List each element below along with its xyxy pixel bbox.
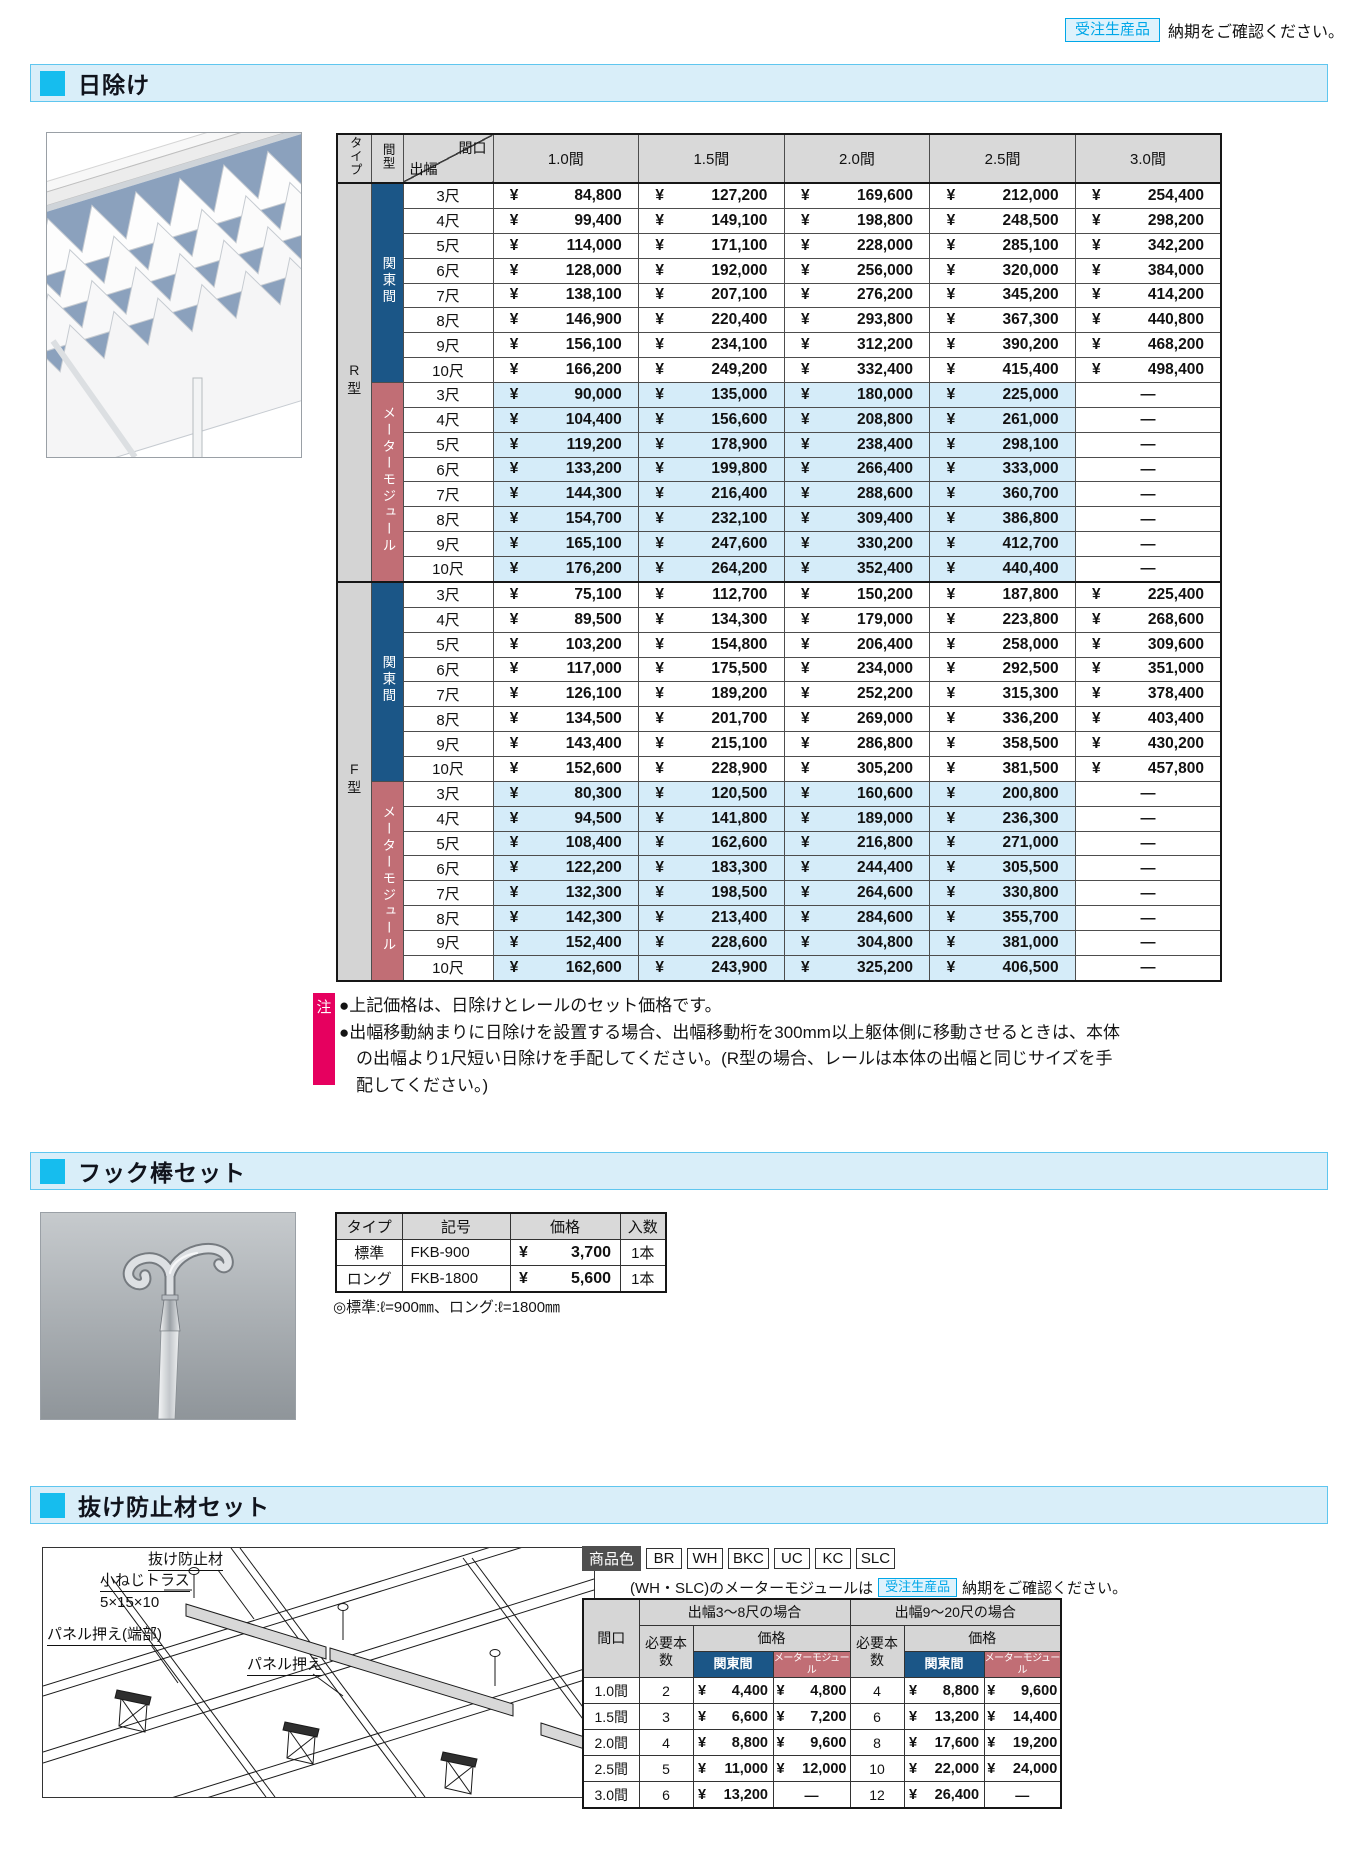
price-cell: ¥284,600: [784, 906, 930, 931]
amount: 13,200: [724, 1787, 768, 1803]
price-cell: ¥309,600: [1075, 632, 1221, 657]
price-cell: ¥192,000: [639, 258, 785, 283]
price-value: ¥234,100: [655, 336, 767, 354]
price-cell: ¥108,400: [493, 831, 639, 856]
yen-sign: ¥: [947, 760, 956, 778]
price-cell: ¥189,000: [784, 806, 930, 831]
amount: 457,800: [1148, 760, 1204, 778]
amount: 367,300: [1003, 311, 1059, 329]
price-value: ¥412,700: [947, 535, 1059, 553]
price-cell: ¥138,100: [493, 283, 639, 308]
yen-sign: ¥: [777, 1709, 785, 1725]
amount: 4,400: [732, 1683, 768, 1699]
depth-cell: 6尺: [403, 657, 493, 682]
yen-sign: ¥: [655, 535, 664, 553]
price-value: ¥166,200: [510, 361, 622, 379]
yen-sign: ¥: [510, 212, 519, 230]
price-cell: ¥90,000: [493, 382, 639, 407]
price-cell: ¥178,900: [639, 432, 785, 457]
price-value: ¥104,400: [510, 411, 622, 429]
sunshade-photo-illustration: [47, 133, 301, 457]
col-header-qty: 必要本数: [639, 1626, 693, 1678]
amount: 228,600: [711, 934, 767, 952]
price-cell: ¥14,400: [984, 1704, 1061, 1730]
price-value: ¥192,000: [655, 262, 767, 280]
price-value: ¥271,000: [947, 834, 1059, 852]
price-value: ¥156,100: [510, 336, 622, 354]
amount: 198,500: [711, 884, 767, 902]
price-cell: ¥103,200: [493, 632, 639, 657]
amount: 440,400: [1003, 560, 1059, 578]
price-cell: ¥84,800: [493, 183, 639, 208]
price-value: ¥208,800: [801, 411, 913, 429]
depth-cell: 6尺: [403, 457, 493, 482]
price-value: ¥144,300: [510, 485, 622, 503]
yen-sign: ¥: [510, 685, 519, 703]
hiyoke-note-block: 注 ●上記価格は、日除けとレールのセット価格です。 ●出幅移動納まりに日除けを設…: [313, 993, 1123, 1099]
amount: 180,000: [857, 386, 913, 404]
yen-sign: ¥: [655, 460, 664, 478]
yen-sign: ¥: [655, 436, 664, 454]
price-value: ¥84,800: [510, 187, 622, 205]
amount: 386,800: [1003, 510, 1059, 528]
price-cell: ¥11,000: [693, 1756, 773, 1782]
amount: 498,400: [1148, 361, 1204, 379]
price-cell: ¥5,600: [510, 1266, 620, 1293]
hook-table-head: タイプ記号価格入数: [336, 1213, 666, 1240]
price-cell: ¥266,400: [784, 457, 930, 482]
nuke-note-prefix: (WH・SLC)のメーターモジュールは: [630, 1577, 873, 1598]
price-value: ¥11,000: [698, 1761, 768, 1777]
yen-sign: ¥: [655, 909, 664, 927]
amount: 134,300: [711, 611, 767, 629]
amount: 468,200: [1148, 336, 1204, 354]
yen-sign: ¥: [801, 859, 810, 877]
price-value: ¥333,000: [947, 460, 1059, 478]
amount: 403,400: [1148, 710, 1204, 728]
amount: 26,400: [935, 1787, 979, 1803]
price-value: ¥134,500: [510, 710, 622, 728]
amount: 360,700: [1003, 485, 1059, 503]
price-cell: ¥220,400: [639, 308, 785, 333]
yen-sign: ¥: [510, 386, 519, 404]
yen-sign: ¥: [698, 1787, 706, 1803]
amount: 11,000: [724, 1761, 768, 1777]
price-value: ¥122,200: [510, 859, 622, 877]
yen-sign: ¥: [655, 785, 664, 803]
col-header: タイプ: [336, 1213, 402, 1240]
yen-sign: ¥: [801, 336, 810, 354]
nuke-table-body: 1.0間2¥4,400¥4,8004¥8,800¥9,6001.5間3¥6,60…: [583, 1678, 1061, 1809]
yen-sign: ¥: [801, 586, 810, 604]
price-value: ¥415,400: [947, 361, 1059, 379]
price-cell: ¥305,500: [930, 856, 1076, 881]
price-value: ¥215,100: [655, 735, 767, 753]
amount: 309,400: [857, 510, 913, 528]
table-row: 7尺¥138,100¥207,100¥276,200¥345,200¥414,2…: [337, 283, 1221, 308]
section-header-hiyoke: 日除け: [30, 64, 1328, 102]
price-cell: ¥201,700: [639, 707, 785, 732]
yen-sign: ¥: [801, 311, 810, 329]
amount: 309,600: [1148, 636, 1204, 654]
price-cell: ¥315,300: [930, 682, 1076, 707]
code-cell: FKB-900: [402, 1240, 510, 1266]
price-value: ¥141,800: [655, 810, 767, 828]
yen-sign: ¥: [947, 411, 956, 429]
amount: 345,200: [1003, 286, 1059, 304]
price-cell: ¥360,700: [930, 482, 1076, 507]
yen-sign: ¥: [947, 884, 956, 902]
price-cell: ¥320,000: [930, 258, 1076, 283]
price-cell: ¥216,800: [784, 831, 930, 856]
type-cell: 標準: [336, 1240, 402, 1266]
col-header-group1: 出幅3〜8尺の場合: [639, 1599, 850, 1626]
yen-sign: ¥: [1092, 361, 1101, 379]
price-cell: ¥89,500: [493, 607, 639, 632]
price-cell: —: [1075, 507, 1221, 532]
price-cell: ¥199,800: [639, 457, 785, 482]
depth-cell: 4尺: [403, 806, 493, 831]
yen-sign: ¥: [655, 510, 664, 528]
depth-cell: 9尺: [403, 532, 493, 557]
price-cell: ¥381,000: [930, 930, 1076, 955]
yen-sign: ¥: [698, 1735, 706, 1751]
price-value: ¥198,500: [655, 884, 767, 902]
price-value: ¥149,100: [655, 212, 767, 230]
yen-sign: ¥: [801, 535, 810, 553]
price-value: ¥138,100: [510, 286, 622, 304]
yen-sign: ¥: [655, 411, 664, 429]
col-header-width: 1.5間: [639, 134, 785, 183]
price-cell: —: [1075, 781, 1221, 806]
price-value: ¥119,200: [510, 436, 622, 454]
price-cell: ¥135,000: [639, 382, 785, 407]
yen-sign: ¥: [801, 460, 810, 478]
amount: 254,400: [1148, 187, 1204, 205]
price-cell: ¥175,500: [639, 657, 785, 682]
depth-cell: 6尺: [403, 258, 493, 283]
price-value: ¥330,800: [947, 884, 1059, 902]
price-value: ¥94,500: [510, 810, 622, 828]
price-value: ¥108,400: [510, 834, 622, 852]
price-value: ¥284,600: [801, 909, 913, 927]
yen-sign: ¥: [801, 237, 810, 255]
price-value: ¥180,000: [801, 386, 913, 404]
amount: 166,200: [566, 361, 622, 379]
price-value: ¥384,000: [1092, 262, 1204, 280]
price-cell: ¥141,800: [639, 806, 785, 831]
price-cell: ¥243,900: [639, 955, 785, 981]
amount: 162,600: [711, 834, 767, 852]
price-cell: ¥342,200: [1075, 233, 1221, 258]
price-value: ¥213,400: [655, 909, 767, 927]
price-cell: —: [1075, 856, 1221, 881]
price-value: ¥4,400: [698, 1683, 768, 1699]
price-value: ¥256,000: [801, 262, 913, 280]
note-line: ●上記価格は、日除けとレールのセット価格です。: [339, 993, 1123, 1020]
yen-sign: ¥: [510, 286, 519, 304]
price-value: ¥13,200: [698, 1787, 768, 1803]
price-cell: ¥144,300: [493, 482, 639, 507]
hiyoke-product-photo: [46, 132, 302, 458]
amount: 440,800: [1148, 311, 1204, 329]
table-row: 7尺¥126,100¥189,200¥252,200¥315,300¥378,4…: [337, 682, 1221, 707]
amount: 154,800: [711, 636, 767, 654]
price-value: ¥127,200: [655, 187, 767, 205]
amount: 128,000: [566, 262, 622, 280]
price-value: ¥26,400: [909, 1787, 979, 1803]
depth-cell: 7尺: [403, 283, 493, 308]
price-value: ¥90,000: [510, 386, 622, 404]
price-value: ¥225,400: [1092, 586, 1204, 604]
table-row: 6尺¥122,200¥183,300¥244,400¥305,500—: [337, 856, 1221, 881]
amount: 156,600: [711, 411, 767, 429]
table-row: 8尺¥154,700¥232,100¥309,400¥386,800—: [337, 507, 1221, 532]
price-cell: ¥309,400: [784, 507, 930, 532]
price-cell: ¥112,700: [639, 582, 785, 607]
qty-cell: 1本: [620, 1266, 666, 1293]
yen-sign: ¥: [510, 411, 519, 429]
price-cell: —: [1075, 955, 1221, 981]
price-cell: ¥258,000: [930, 632, 1076, 657]
amount: 223,800: [1003, 611, 1059, 629]
price-value: ¥386,800: [947, 510, 1059, 528]
amount: 162,600: [566, 959, 622, 977]
product-colors-label: 商品色: [582, 1546, 641, 1571]
price-cell: ¥152,400: [493, 930, 639, 955]
price-cell: ¥228,600: [639, 930, 785, 955]
price-cell: ¥252,200: [784, 682, 930, 707]
amount: 187,800: [1003, 586, 1059, 604]
table-row: 標準FKB-900¥3,7001本: [336, 1240, 666, 1266]
yen-sign: ¥: [510, 760, 519, 778]
amount: 199,800: [711, 460, 767, 478]
amount: 342,200: [1148, 237, 1204, 255]
price-value: ¥3,700: [519, 1244, 611, 1262]
catalog-page: 受注生産品 納期をご確認ください。 日除け タイプ間型間口出幅1.0間1.5: [0, 0, 1360, 1876]
price-value: ¥165,100: [510, 535, 622, 553]
price-cell: ¥228,000: [784, 233, 930, 258]
price-cell: ¥22,000: [904, 1756, 984, 1782]
yen-sign: ¥: [947, 735, 956, 753]
col-header-span-type-label: 間型: [380, 143, 393, 170]
yen-sign: ¥: [947, 959, 956, 977]
price-cell: ¥247,600: [639, 532, 785, 557]
price-cell: ¥143,400: [493, 732, 639, 757]
qty-cell: 6: [850, 1704, 904, 1730]
diag-top-label: 間口: [459, 138, 487, 158]
amount: 298,200: [1148, 212, 1204, 230]
yen-sign: ¥: [655, 636, 664, 654]
table-row: F型関東間3尺¥75,100¥112,700¥150,200¥187,800¥2…: [337, 582, 1221, 607]
price-value: ¥244,400: [801, 859, 913, 877]
price-value: ¥7,200: [777, 1709, 847, 1725]
section-header-nuke: 抜け防止材セット: [30, 1486, 1328, 1524]
col-header-width: 3.0間: [1075, 134, 1221, 183]
table-row: 9尺¥165,100¥247,600¥330,200¥412,700—: [337, 532, 1221, 557]
yen-sign: ¥: [947, 212, 956, 230]
depth-cell: 7尺: [403, 482, 493, 507]
amount: 207,100: [711, 286, 767, 304]
amount: 238,400: [857, 436, 913, 454]
price-cell: ¥99,400: [493, 208, 639, 233]
price-value: ¥120,500: [655, 785, 767, 803]
price-value: ¥216,400: [655, 485, 767, 503]
price-value: ¥228,000: [801, 237, 913, 255]
yen-sign: ¥: [947, 460, 956, 478]
price-cell: ¥162,600: [639, 831, 785, 856]
yen-sign: ¥: [1092, 262, 1101, 280]
price-value: ¥143,400: [510, 735, 622, 753]
amount: 84,800: [574, 187, 621, 205]
price-cell: ¥238,400: [784, 432, 930, 457]
amount: 17,600: [935, 1735, 979, 1751]
price-value: ¥430,200: [1092, 735, 1204, 753]
table-row: 4尺¥99,400¥149,100¥198,800¥248,500¥298,20…: [337, 208, 1221, 233]
price-cell: ¥345,200: [930, 283, 1076, 308]
yen-sign: ¥: [947, 909, 956, 927]
table-row: ロングFKB-1800¥5,6001本: [336, 1266, 666, 1293]
amount: 3,700: [571, 1244, 611, 1262]
amount: 406,500: [1003, 959, 1059, 977]
price-cell: ¥223,800: [930, 607, 1076, 632]
price-value: ¥183,300: [655, 859, 767, 877]
amount: 175,500: [711, 660, 767, 678]
amount: 89,500: [574, 611, 621, 629]
col-header-group2: 出幅9〜20尺の場合: [850, 1599, 1061, 1626]
price-cell: ¥187,800: [930, 582, 1076, 607]
yen-sign: ¥: [987, 1761, 995, 1777]
amount: 332,400: [857, 361, 913, 379]
table-row: 2.5間5¥11,000¥12,00010¥22,000¥24,000: [583, 1756, 1061, 1782]
hiyoke-price-table: タイプ間型間口出幅1.0間1.5間2.0間2.5間3.0間 R型関東間3尺¥84…: [336, 133, 1222, 982]
amount: 119,200: [567, 436, 622, 454]
yen-sign: ¥: [1092, 685, 1101, 703]
nuke-note-suffix: 納期をご確認ください。: [962, 1577, 1127, 1598]
yen-sign: ¥: [909, 1709, 917, 1725]
price-cell: —: [1075, 382, 1221, 407]
price-cell: ¥3,700: [510, 1240, 620, 1266]
price-value: ¥175,500: [655, 660, 767, 678]
price-cell: ¥440,400: [930, 556, 1076, 581]
type-cell: ロング: [336, 1266, 402, 1293]
yen-sign: ¥: [1092, 735, 1101, 753]
depth-cell: 3尺: [403, 382, 493, 407]
yen-sign: ¥: [698, 1683, 706, 1699]
qty-cell: 1本: [620, 1240, 666, 1266]
depth-cell: 9尺: [403, 930, 493, 955]
amount: 305,500: [1003, 859, 1059, 877]
yen-sign: ¥: [947, 560, 956, 578]
header-row: タイプ記号価格入数: [336, 1213, 666, 1240]
price-cell: ¥149,100: [639, 208, 785, 233]
amount: 156,100: [566, 336, 622, 354]
yen-sign: ¥: [510, 611, 519, 629]
price-cell: ¥152,600: [493, 756, 639, 781]
yen-sign: ¥: [801, 386, 810, 404]
table-row: 8尺¥134,500¥201,700¥269,000¥336,200¥403,4…: [337, 707, 1221, 732]
yen-sign: ¥: [655, 586, 664, 604]
depth-cell: 4尺: [403, 607, 493, 632]
table-row: 5尺¥103,200¥154,800¥206,400¥258,000¥309,6…: [337, 632, 1221, 657]
amount: 141,800: [711, 810, 767, 828]
price-value: ¥440,400: [947, 560, 1059, 578]
amount: 261,000: [1003, 411, 1059, 429]
price-cell: ¥269,000: [784, 707, 930, 732]
yen-sign: ¥: [947, 286, 956, 304]
price-cell: ¥169,600: [784, 183, 930, 208]
hook-table-body: 標準FKB-900¥3,7001本ロングFKB-1800¥5,6001本: [336, 1240, 666, 1293]
span-type-label: 関東間: [380, 655, 395, 705]
price-cell: —: [1075, 930, 1221, 955]
yen-sign: ¥: [655, 336, 664, 354]
price-value: ¥80,300: [510, 785, 622, 803]
price-value: ¥128,000: [510, 262, 622, 280]
yen-sign: ¥: [801, 212, 810, 230]
price-cell: ¥198,800: [784, 208, 930, 233]
price-cell: ¥498,400: [1075, 358, 1221, 383]
price-cell: ¥414,200: [1075, 283, 1221, 308]
price-value: ¥248,500: [947, 212, 1059, 230]
price-value: ¥9,600: [987, 1683, 1057, 1699]
yen-sign: ¥: [510, 959, 519, 977]
price-cell: —: [1075, 407, 1221, 432]
price-value: ¥212,000: [947, 187, 1059, 205]
table-row: R型関東間3尺¥84,800¥127,200¥169,600¥212,000¥2…: [337, 183, 1221, 208]
span-cell: 1.5間: [583, 1704, 639, 1730]
price-cell: ¥261,000: [930, 407, 1076, 432]
amount: 330,200: [857, 535, 913, 553]
label-screw-truss: 小ねじトラス: [100, 1572, 190, 1592]
hiyoke-notes: ●上記価格は、日除けとレールのセット価格です。 ●出幅移動納まりに日除けを設置す…: [339, 993, 1123, 1099]
price-value: ¥99,400: [510, 212, 622, 230]
price-cell: ¥198,500: [639, 881, 785, 906]
hook-product-photo: [40, 1212, 296, 1420]
price-cell: ¥352,400: [784, 556, 930, 581]
span-type-cell: メーターモジュール: [371, 781, 403, 981]
yen-sign: ¥: [947, 859, 956, 877]
price-cell: ¥256,000: [784, 258, 930, 283]
price-value: ¥355,700: [947, 909, 1059, 927]
price-value: ¥114,000: [510, 237, 622, 255]
yen-sign: ¥: [947, 187, 956, 205]
price-value: ¥330,200: [801, 535, 913, 553]
price-cell: ¥160,600: [784, 781, 930, 806]
price-value: ¥89,500: [510, 611, 622, 629]
yen-sign: ¥: [947, 660, 956, 678]
yen-sign: ¥: [510, 934, 519, 952]
table-row: 9尺¥156,100¥234,100¥312,200¥390,200¥468,2…: [337, 333, 1221, 358]
yen-sign: ¥: [1092, 336, 1101, 354]
amount: 312,200: [857, 336, 913, 354]
price-cell: —: [1075, 482, 1221, 507]
price-cell: ¥271,000: [930, 831, 1076, 856]
col-header-diagonal: 間口出幅: [403, 134, 493, 183]
price-cell: ¥134,500: [493, 707, 639, 732]
amount: 144,300: [566, 485, 622, 503]
price-cell: ¥128,000: [493, 258, 639, 283]
price-value: ¥406,500: [947, 959, 1059, 977]
amount: 298,100: [1003, 436, 1059, 454]
amount: 104,400: [566, 411, 622, 429]
qty-cell: 10: [850, 1756, 904, 1782]
price-value: ¥162,600: [655, 834, 767, 852]
price-value: ¥360,700: [947, 485, 1059, 503]
price-cell: ¥225,400: [1075, 582, 1221, 607]
yen-sign: ¥: [1092, 636, 1101, 654]
depth-cell: 10尺: [403, 756, 493, 781]
table-row: 3.0間6¥13,200—12¥26,400—: [583, 1782, 1061, 1809]
